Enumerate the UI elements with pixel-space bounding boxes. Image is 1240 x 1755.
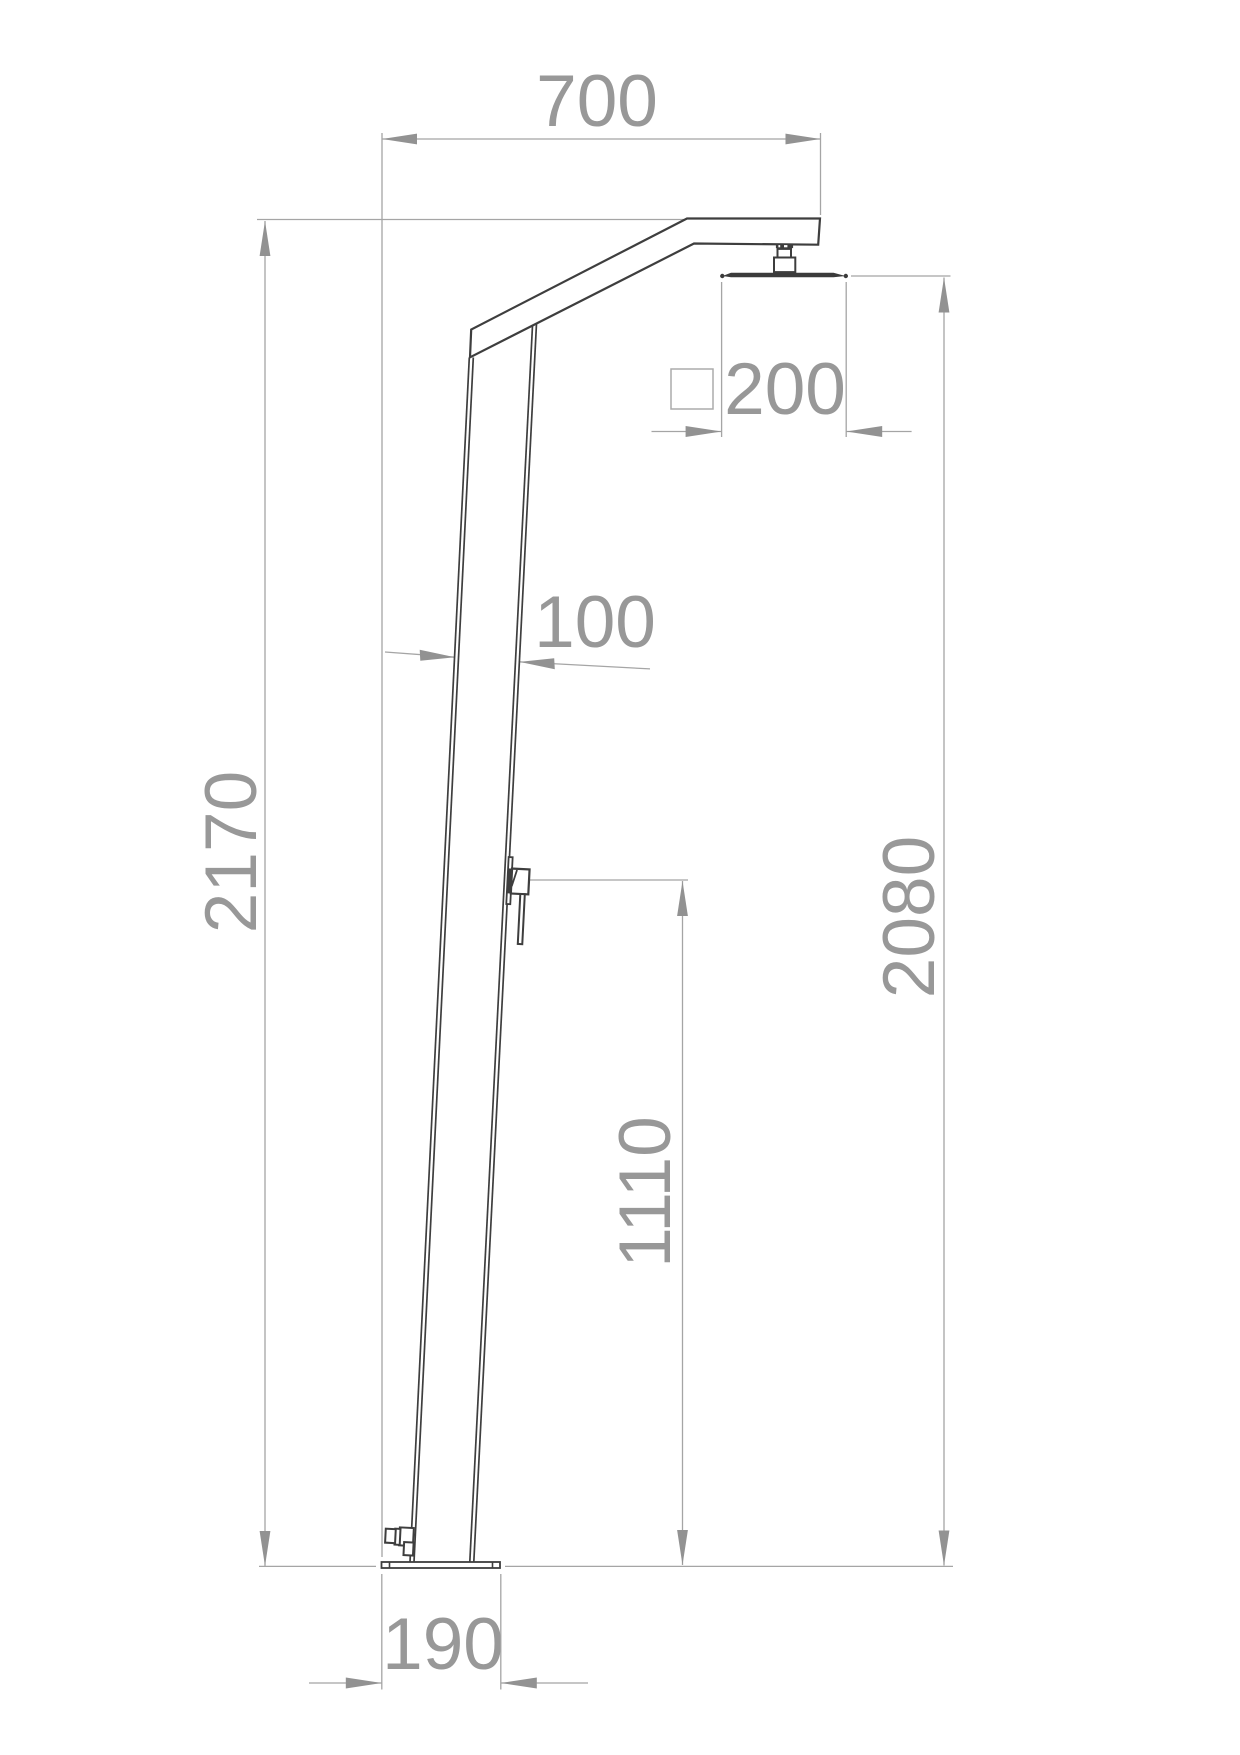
svg-text:700: 700 [536, 61, 658, 142]
svg-text:1110: 1110 [605, 1116, 686, 1268]
svg-text:2080: 2080 [869, 836, 950, 998]
svg-text:190: 190 [382, 1604, 504, 1685]
svg-text:2170: 2170 [191, 771, 272, 933]
svg-text:200: 200 [724, 349, 846, 430]
svg-text:100: 100 [534, 582, 656, 663]
